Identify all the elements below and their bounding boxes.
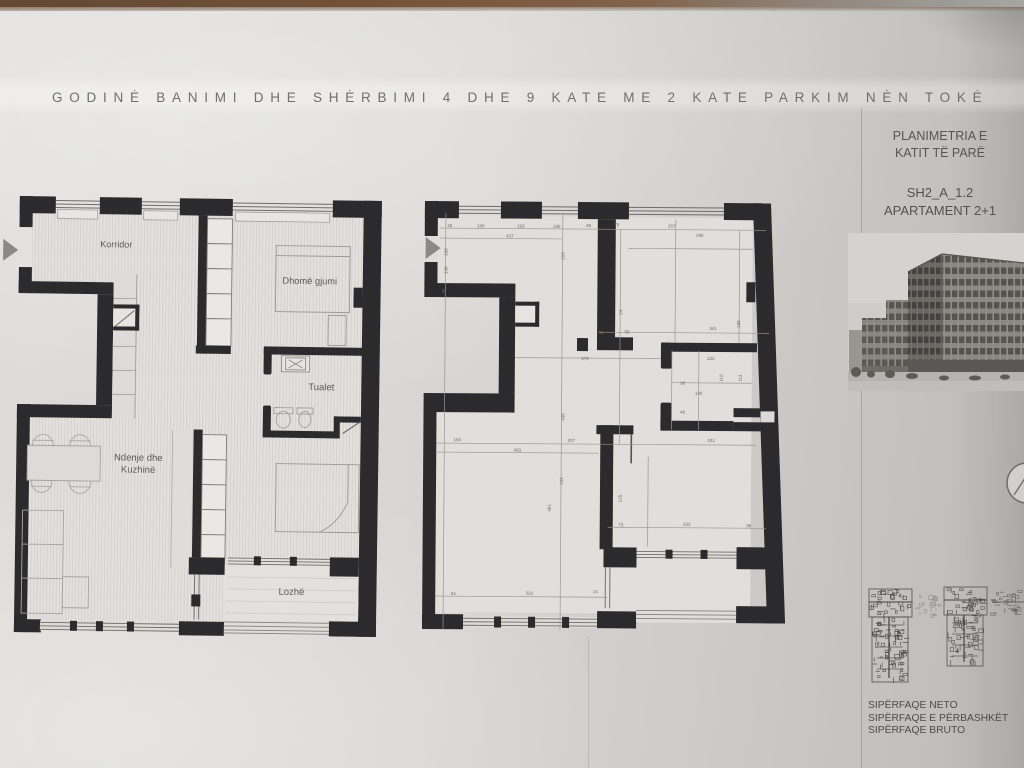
svg-text:233: 233 xyxy=(683,522,691,527)
svg-text:54: 54 xyxy=(451,591,457,596)
svg-text:403: 403 xyxy=(513,448,521,453)
svg-text:275: 275 xyxy=(618,494,623,502)
svg-text:198: 198 xyxy=(553,224,561,229)
svg-text:108: 108 xyxy=(736,320,741,328)
svg-text:220: 220 xyxy=(561,252,566,260)
svg-text:207: 207 xyxy=(568,438,576,443)
svg-text:461: 461 xyxy=(547,504,552,512)
svg-text:113: 113 xyxy=(738,374,743,382)
svg-text:Dhomë gjumi: Dhomë gjumi xyxy=(282,276,337,287)
svg-text:73: 73 xyxy=(618,522,624,527)
svg-text:75: 75 xyxy=(614,222,620,227)
svg-text:Kuzhinë: Kuzhinë xyxy=(121,464,155,475)
svg-text:Ndenje dhe: Ndenje dhe xyxy=(114,452,163,464)
svg-text:296: 296 xyxy=(696,233,704,238)
svg-text:222: 222 xyxy=(559,477,564,485)
svg-text:225: 225 xyxy=(707,356,715,361)
svg-text:24: 24 xyxy=(618,309,623,315)
svg-text:90: 90 xyxy=(599,330,605,335)
svg-text:14: 14 xyxy=(593,589,599,594)
svg-text:379: 379 xyxy=(581,356,589,361)
svg-text:65: 65 xyxy=(625,329,631,334)
svg-text:90: 90 xyxy=(680,381,686,386)
svg-text:96: 96 xyxy=(746,523,752,528)
svg-text:35: 35 xyxy=(441,288,446,294)
svg-text:341: 341 xyxy=(709,326,717,331)
svg-text:Lozhë: Lozhë xyxy=(278,587,304,598)
svg-text:437: 437 xyxy=(506,234,514,239)
svg-text:48: 48 xyxy=(447,223,453,228)
svg-text:Korridor: Korridor xyxy=(100,239,132,249)
svg-text:46: 46 xyxy=(680,410,686,415)
svg-text:140: 140 xyxy=(695,391,703,396)
svg-text:193: 193 xyxy=(517,224,525,229)
svg-text:188: 188 xyxy=(477,223,485,228)
svg-text:Tualet: Tualet xyxy=(308,382,335,393)
svg-text:496: 496 xyxy=(560,413,565,421)
svg-text:110: 110 xyxy=(719,374,724,382)
svg-text:100: 100 xyxy=(444,248,449,256)
svg-text:241: 241 xyxy=(708,438,716,443)
svg-text:68: 68 xyxy=(586,223,592,228)
svg-text:194: 194 xyxy=(454,437,462,442)
svg-text:333: 333 xyxy=(525,591,533,596)
svg-text:257: 257 xyxy=(668,224,676,229)
svg-text:148: 148 xyxy=(443,266,448,274)
